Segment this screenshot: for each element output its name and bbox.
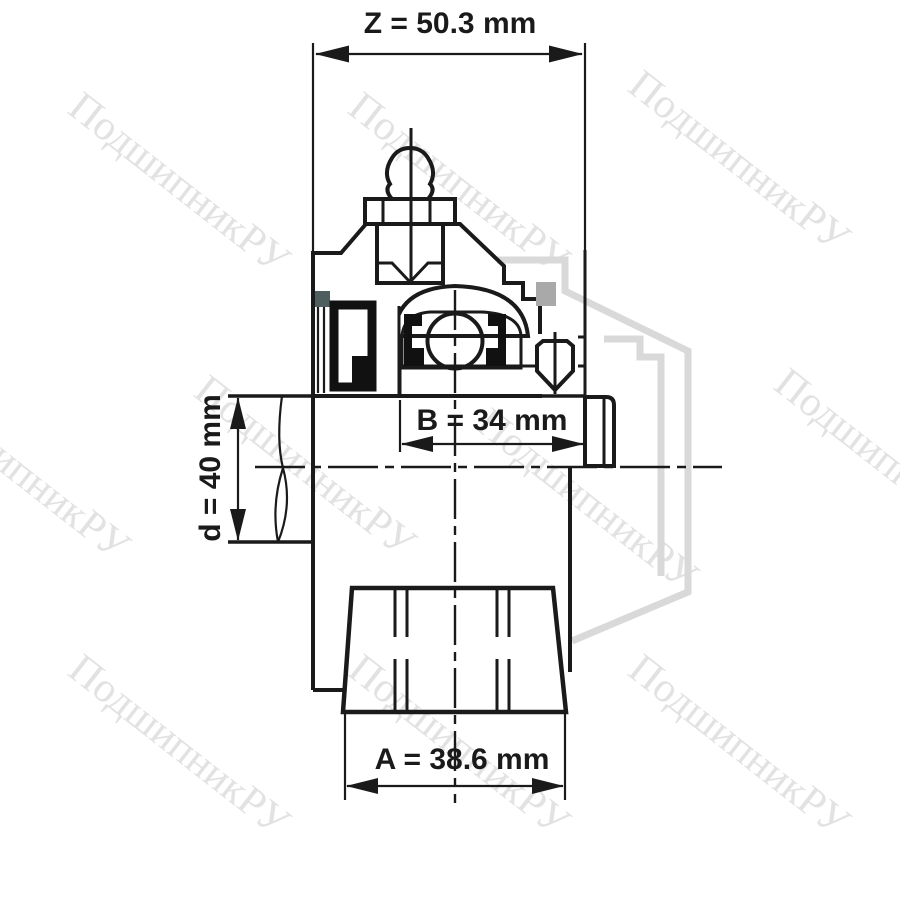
- dimension-b: B = 34 mm: [400, 400, 584, 452]
- dimension-d: d = 40 mm: [194, 394, 246, 542]
- dimension-z-label: Z = 50.3 mm: [364, 7, 537, 40]
- dimension-b-label: B = 34 mm: [417, 404, 568, 437]
- ghost-overlap-patch: [536, 282, 556, 306]
- dimension-a-label: A = 38.6 mm: [375, 743, 550, 776]
- bearing-unit-technical-drawing: ПодшипникРУ ПодшипникРУ ПодшипникРУ Подш…: [0, 0, 900, 900]
- dimension-d-label: d = 40 mm: [194, 394, 227, 542]
- drawing-canvas: ПодшипникРУ ПодшипникРУ ПодшипникРУ Подш…: [0, 0, 900, 900]
- rubber-seal-block: [352, 356, 374, 390]
- seal-corner-block: [314, 291, 330, 307]
